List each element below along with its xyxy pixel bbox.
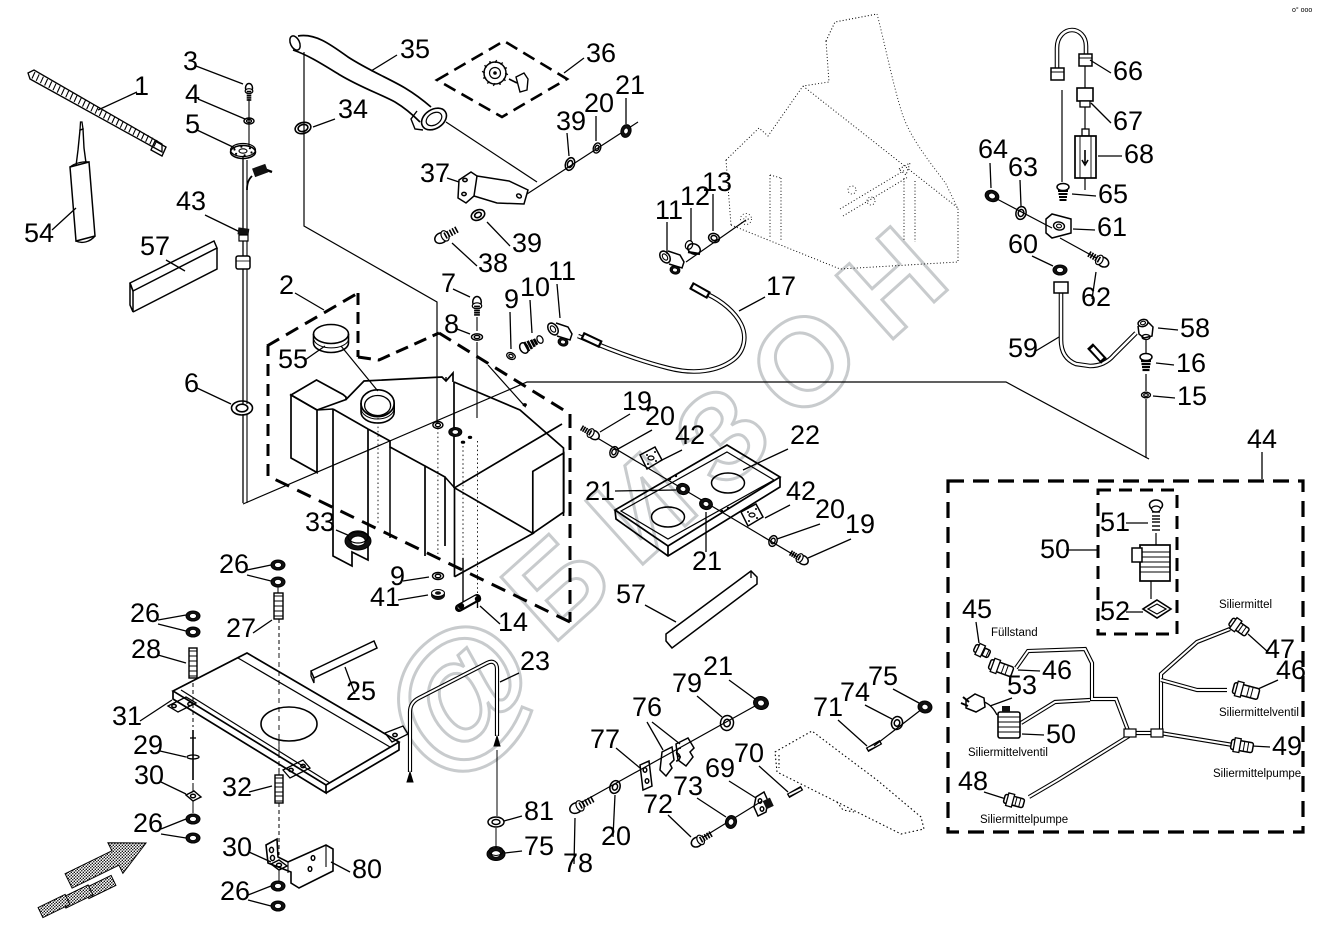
svg-text:36: 36 xyxy=(586,38,616,68)
svg-text:o° ooo: o° ooo xyxy=(1292,6,1312,14)
svg-text:50: 50 xyxy=(1040,534,1070,564)
svg-text:21: 21 xyxy=(615,70,645,100)
svg-text:15: 15 xyxy=(1177,381,1207,411)
svg-text:27: 27 xyxy=(226,613,256,643)
svg-text:46: 46 xyxy=(1042,655,1072,685)
svg-text:31: 31 xyxy=(112,701,142,731)
svg-text:57: 57 xyxy=(140,231,170,261)
svg-text:67: 67 xyxy=(1113,106,1143,136)
svg-text:32: 32 xyxy=(222,772,252,802)
svg-text:46: 46 xyxy=(1276,655,1306,685)
svg-text:26: 26 xyxy=(220,876,250,906)
svg-text:80: 80 xyxy=(352,854,382,884)
svg-text:81: 81 xyxy=(524,796,554,826)
svg-text:7: 7 xyxy=(441,268,456,298)
svg-text:50: 50 xyxy=(1046,719,1076,749)
svg-text:26: 26 xyxy=(219,549,249,579)
svg-text:58: 58 xyxy=(1180,313,1210,343)
svg-text:4: 4 xyxy=(185,79,200,109)
svg-text:Füllstand: Füllstand xyxy=(991,627,1038,639)
svg-text:59: 59 xyxy=(1008,333,1038,363)
svg-text:70: 70 xyxy=(734,738,764,768)
svg-text:34: 34 xyxy=(338,94,368,124)
svg-text:64: 64 xyxy=(978,134,1008,164)
svg-text:51: 51 xyxy=(1100,507,1130,537)
svg-text:39: 39 xyxy=(512,228,542,258)
svg-text:66: 66 xyxy=(1113,56,1143,86)
svg-text:13: 13 xyxy=(702,167,732,197)
svg-text:57: 57 xyxy=(616,579,646,609)
svg-text:21: 21 xyxy=(692,546,722,576)
svg-text:68: 68 xyxy=(1124,139,1154,169)
svg-text:20: 20 xyxy=(815,494,845,524)
svg-text:8: 8 xyxy=(444,309,459,339)
svg-text:45: 45 xyxy=(962,594,992,624)
svg-text:42: 42 xyxy=(675,420,705,450)
svg-text:11: 11 xyxy=(548,256,576,286)
svg-text:2: 2 xyxy=(279,270,294,300)
svg-text:48: 48 xyxy=(958,766,988,796)
svg-text:20: 20 xyxy=(645,401,675,431)
svg-text:62: 62 xyxy=(1081,282,1111,312)
svg-text:44: 44 xyxy=(1247,424,1277,454)
svg-text:19: 19 xyxy=(845,509,875,539)
svg-text:69: 69 xyxy=(705,753,735,783)
svg-text:22: 22 xyxy=(790,420,820,450)
svg-text:71: 71 xyxy=(813,692,843,722)
svg-text:55: 55 xyxy=(278,344,308,374)
svg-text:39: 39 xyxy=(556,106,586,136)
svg-text:Siliermittelventil: Siliermittelventil xyxy=(968,747,1048,759)
svg-text:26: 26 xyxy=(133,808,163,838)
svg-text:29: 29 xyxy=(133,730,163,760)
svg-text:23: 23 xyxy=(520,646,550,676)
svg-text:38: 38 xyxy=(478,248,508,278)
svg-text:3: 3 xyxy=(183,46,198,76)
svg-text:20: 20 xyxy=(584,88,614,118)
svg-text:20: 20 xyxy=(601,821,631,851)
svg-text:Siliermittel: Siliermittel xyxy=(1219,599,1272,611)
svg-text:72: 72 xyxy=(643,789,673,819)
svg-text:14: 14 xyxy=(498,607,528,637)
svg-text:63: 63 xyxy=(1008,152,1038,182)
svg-text:78: 78 xyxy=(563,848,593,878)
svg-text:Siliermittelpumpe: Siliermittelpumpe xyxy=(1213,768,1301,780)
svg-text:65: 65 xyxy=(1098,179,1128,209)
svg-text:41: 41 xyxy=(370,582,400,612)
svg-text:5: 5 xyxy=(185,109,200,139)
svg-text:16: 16 xyxy=(1176,348,1206,378)
svg-text:21: 21 xyxy=(585,476,615,506)
svg-text:17: 17 xyxy=(766,271,796,301)
svg-text:30: 30 xyxy=(134,760,164,790)
svg-text:30: 30 xyxy=(222,832,252,862)
svg-text:9: 9 xyxy=(504,284,519,314)
svg-text:61: 61 xyxy=(1097,212,1127,242)
svg-text:10: 10 xyxy=(520,272,550,302)
svg-text:11: 11 xyxy=(655,195,683,225)
svg-text:52: 52 xyxy=(1100,596,1130,626)
svg-text:1: 1 xyxy=(134,71,149,101)
svg-text:74: 74 xyxy=(840,677,870,707)
svg-text:Siliermittelventil: Siliermittelventil xyxy=(1219,707,1299,719)
svg-text:42: 42 xyxy=(786,476,816,506)
svg-text:35: 35 xyxy=(400,34,430,64)
svg-text:Siliermittelpumpe: Siliermittelpumpe xyxy=(980,814,1068,826)
svg-text:49: 49 xyxy=(1272,731,1302,761)
svg-text:54: 54 xyxy=(24,218,54,248)
svg-text:73: 73 xyxy=(673,771,703,801)
svg-text:75: 75 xyxy=(868,661,898,691)
svg-text:28: 28 xyxy=(131,634,161,664)
svg-text:26: 26 xyxy=(130,598,160,628)
svg-text:53: 53 xyxy=(1007,670,1037,700)
svg-text:6: 6 xyxy=(184,368,199,398)
svg-text:79: 79 xyxy=(672,668,702,698)
svg-text:21: 21 xyxy=(703,651,733,681)
svg-text:33: 33 xyxy=(305,507,335,537)
svg-text:76: 76 xyxy=(632,692,662,722)
svg-text:77: 77 xyxy=(590,724,620,754)
svg-text:75: 75 xyxy=(524,831,554,861)
svg-text:37: 37 xyxy=(420,158,450,188)
svg-text:60: 60 xyxy=(1008,229,1038,259)
svg-text:43: 43 xyxy=(176,186,206,216)
